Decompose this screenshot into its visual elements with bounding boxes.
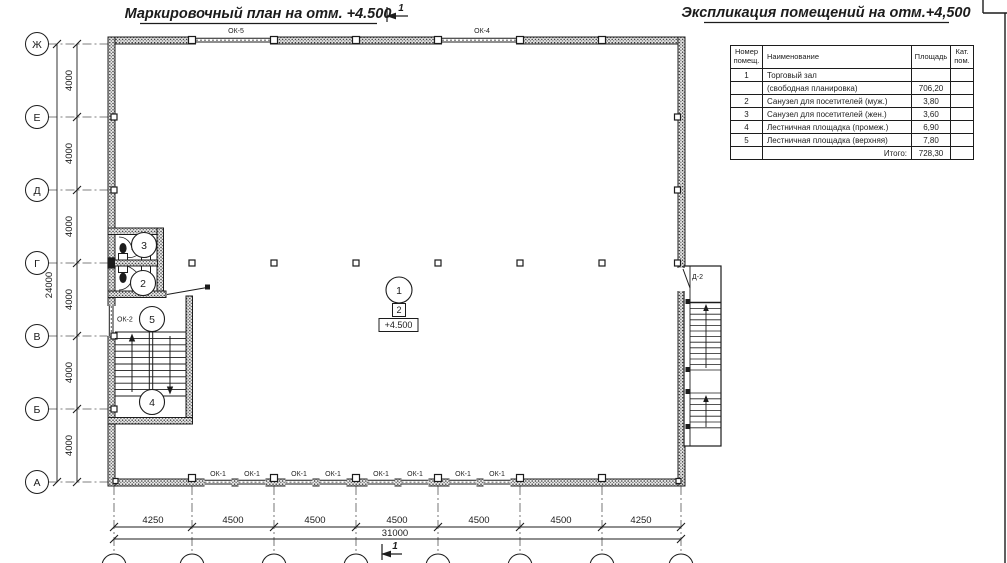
schedule-row: 3 Санузел для посетителей (жен.) 3,60 bbox=[731, 108, 974, 121]
schedule-total-label: Итого: bbox=[763, 147, 912, 160]
schedule-cell-cat bbox=[951, 69, 974, 82]
schedule-total-row: Итого: 728,30 bbox=[731, 147, 974, 160]
schedule-cell-name: Торговый зал bbox=[763, 69, 912, 82]
window-mark-ok1: ОК-1 bbox=[244, 471, 260, 478]
dim-bottom-5: 4500 bbox=[468, 515, 489, 526]
dim-bottom-3: 4500 bbox=[304, 515, 325, 526]
door-mark-d2: Д-2 bbox=[692, 274, 703, 281]
schedule-header-cat: Кат. пом. bbox=[951, 46, 974, 69]
schedule-cell-area: 3,80 bbox=[912, 95, 951, 108]
window-mark-ok1: ОК-1 bbox=[373, 471, 389, 478]
axis-row-e: Е bbox=[33, 112, 40, 124]
dim-chain-bottom: 4250 4500 4500 4500 4500 4500 4250 31000 bbox=[110, 515, 685, 543]
dim-left-2: 4000 bbox=[64, 143, 75, 164]
schedule-cell-area: 3,60 bbox=[912, 108, 951, 121]
schedule-cell-cat bbox=[951, 121, 974, 134]
schedule-cell-num bbox=[731, 82, 763, 95]
axis-bubbles-cols: 1 2 3 4 5 6 7 8 bbox=[102, 554, 693, 563]
dim-bottom-total: 31000 bbox=[382, 528, 408, 539]
schedule-title: Экспликация помещений на отм.+4,500 bbox=[681, 5, 970, 21]
sheet-frame bbox=[983, 0, 1007, 563]
plan-title-block: Маркировочный план на отм. +4.500 1 bbox=[125, 3, 408, 24]
section-mark-bottom: 1 bbox=[381, 541, 402, 560]
schedule-cell-name: Санузел для посетителей (жен.) bbox=[763, 108, 912, 121]
schedule-cell-area bbox=[912, 69, 951, 82]
schedule-cell-area: 7,80 bbox=[912, 134, 951, 147]
columns bbox=[108, 37, 681, 484]
window-mark-ok1: ОК-1 bbox=[291, 471, 307, 478]
schedule-cell-cat bbox=[951, 108, 974, 121]
schedule-row: 5 Лестничная площадка (верхняя) 7,80 bbox=[731, 134, 974, 147]
axis-row-v: В bbox=[33, 331, 40, 343]
dim-bottom-6: 4500 bbox=[550, 515, 571, 526]
window-ok5 bbox=[196, 36, 270, 44]
right-staircase bbox=[677, 266, 721, 446]
plan-title: Маркировочный план на отм. +4.500 bbox=[125, 6, 392, 22]
axis-row-d: Д bbox=[33, 185, 40, 197]
schedule-cell-cat bbox=[951, 134, 974, 147]
schedule-cell-area: 6,90 bbox=[912, 121, 951, 134]
schedule-header-row: Номер помещ. Наименование Площадь Кат. п… bbox=[731, 46, 974, 69]
room-bubble-5: 5 bbox=[149, 314, 155, 326]
window-mark-ok1: ОК-1 bbox=[325, 471, 341, 478]
dim-bottom-1: 4250 bbox=[142, 515, 163, 526]
schedule-cell-name: (свободная планировка) bbox=[763, 82, 912, 95]
level-tag: +4.500 bbox=[385, 320, 413, 330]
room-bubble-1: 1 bbox=[396, 285, 402, 297]
dim-left-total: 24000 bbox=[44, 272, 55, 298]
schedule-row: 1 Торговый зал bbox=[731, 69, 974, 82]
schedule-header-area: Площадь bbox=[912, 46, 951, 69]
window-mark-ok2: ОК-2 bbox=[117, 317, 133, 324]
schedule-row: 2 Санузел для посетителей (муж.) 3,80 bbox=[731, 95, 974, 108]
room-schedule-table: Номер помещ. Наименование Площадь Кат. п… bbox=[730, 45, 974, 160]
schedule-header-name: Наименование bbox=[763, 46, 912, 69]
axis-bubbles-rows: Ж Е Д Г В Б А bbox=[26, 33, 49, 494]
schedule-cell-num: 2 bbox=[731, 95, 763, 108]
dim-left-3: 4000 bbox=[64, 216, 75, 237]
schedule-cell-num: 5 bbox=[731, 134, 763, 147]
schedule-cell-area: 706,20 bbox=[912, 82, 951, 95]
section-mark-bottom-label: 1 bbox=[392, 541, 398, 552]
schedule-cell-num: 1 bbox=[731, 69, 763, 82]
schedule-cell-cat bbox=[951, 95, 974, 108]
room-bubble-3: 3 bbox=[141, 240, 147, 252]
window-mark-ok1: ОК-1 bbox=[489, 471, 505, 478]
schedule-cell-num: 3 bbox=[731, 108, 763, 121]
axis-row-a: А bbox=[33, 477, 40, 489]
schedule-row: 4 Лестничная площадка (промеж.) 6,90 bbox=[731, 121, 974, 134]
window-mark-ok1: ОК-1 bbox=[210, 471, 226, 478]
axis-row-g: Г bbox=[34, 258, 40, 270]
room-bubble-4: 4 bbox=[149, 397, 155, 409]
window-ok4 bbox=[442, 36, 516, 44]
schedule-row: (свободная планировка) 706,20 bbox=[731, 82, 974, 95]
schedule-cell-name: Лестничная площадка (верхняя) bbox=[763, 134, 912, 147]
axis-row-b: Б bbox=[34, 404, 41, 416]
window-mark-ok1: ОК-1 bbox=[455, 471, 471, 478]
grid-axis-lines bbox=[49, 44, 682, 554]
dim-bottom-2: 4500 bbox=[222, 515, 243, 526]
zone-tag: 2 bbox=[396, 305, 401, 315]
dim-left-4: 4000 bbox=[64, 289, 75, 310]
schedule-cell-name: Санузел для посетителей (муж.) bbox=[763, 95, 912, 108]
dim-bottom-7: 4250 bbox=[630, 515, 651, 526]
drawing-sheet: Маркировочный план на отм. +4.500 1 Эксп… bbox=[0, 0, 1007, 563]
schedule-header-num: Номер помещ. bbox=[731, 46, 763, 69]
schedule-total-value: 728,30 bbox=[912, 147, 951, 160]
section-mark-top-label: 1 bbox=[398, 3, 404, 14]
window-mark-ok1: ОК-1 bbox=[407, 471, 423, 478]
room-bubble-2: 2 bbox=[140, 278, 146, 290]
schedule-cell-cat bbox=[951, 82, 974, 95]
dim-left-1: 4000 bbox=[64, 70, 75, 91]
window-ok2 bbox=[107, 306, 115, 336]
axis-row-zh: Ж bbox=[32, 39, 42, 51]
schedule-cell-num: 4 bbox=[731, 121, 763, 134]
dim-bottom-4: 4500 bbox=[386, 515, 407, 526]
dim-left-5: 4000 bbox=[64, 362, 75, 383]
schedule-cell-name: Лестничная площадка (промеж.) bbox=[763, 121, 912, 134]
window-mark-ok5: ОК-5 bbox=[228, 28, 244, 35]
window-mark-ok4: ОК-4 bbox=[474, 28, 490, 35]
dim-left-6: 4000 bbox=[64, 435, 75, 456]
